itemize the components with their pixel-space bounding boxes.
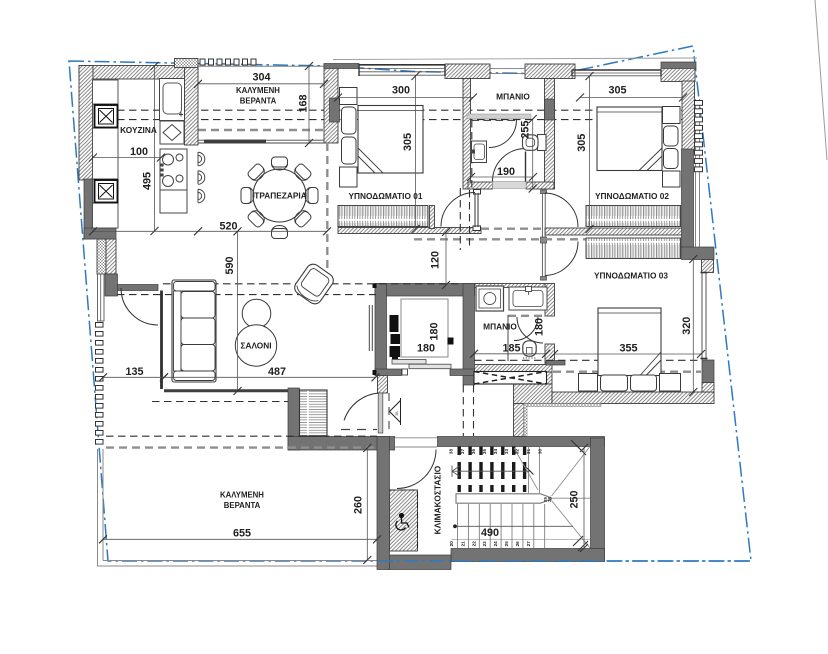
svg-text:487: 487 <box>268 366 286 378</box>
svg-text:38: 38 <box>449 449 454 455</box>
svg-text:180: 180 <box>417 343 435 355</box>
svg-text:305: 305 <box>576 134 588 152</box>
svg-text:655: 655 <box>233 528 251 540</box>
svg-text:490: 490 <box>481 527 499 539</box>
svg-text:33: 33 <box>504 449 509 455</box>
svg-text:20: 20 <box>449 541 454 547</box>
svg-text:ΚΟΥΖΙΝΑ: ΚΟΥΖΙΝΑ <box>120 125 157 135</box>
svg-text:37: 37 <box>460 449 465 455</box>
svg-text:ΜΠΑΝΙΟ: ΜΠΑΝΙΟ <box>483 322 517 332</box>
svg-text:36: 36 <box>471 449 476 455</box>
svg-text:25: 25 <box>504 541 509 547</box>
svg-text:185: 185 <box>502 343 520 355</box>
svg-text:100: 100 <box>130 146 148 158</box>
svg-text:180: 180 <box>429 322 441 340</box>
svg-text:ΜΠΑΝΙΟ: ΜΠΑΝΙΟ <box>496 92 530 102</box>
svg-text:ΚΑΛΥΜΕΝΗ: ΚΑΛΥΜΕΝΗ <box>220 491 264 500</box>
svg-text:304: 304 <box>252 72 270 84</box>
svg-text:28: 28 <box>547 497 552 502</box>
svg-text:34: 34 <box>493 449 498 455</box>
svg-text:ΥΠΝΟΔΩΜΑΤΙΟ 02: ΥΠΝΟΔΩΜΑΤΙΟ 02 <box>595 191 669 201</box>
svg-text:3Β: 3Β <box>395 411 399 416</box>
svg-text:355: 355 <box>619 343 637 355</box>
svg-text:22: 22 <box>471 541 476 547</box>
svg-text:ΣΑΛΟΝΙ: ΣΑΛΟΝΙ <box>240 340 271 350</box>
svg-text:520: 520 <box>219 221 237 233</box>
svg-text:260: 260 <box>353 496 365 514</box>
svg-text:30: 30 <box>538 449 543 455</box>
svg-text:305: 305 <box>402 133 414 151</box>
svg-text:21: 21 <box>460 541 465 547</box>
svg-text:180: 180 <box>533 318 545 336</box>
svg-text:23: 23 <box>482 541 487 547</box>
svg-text:300: 300 <box>392 85 410 97</box>
svg-text:27: 27 <box>526 541 531 547</box>
svg-text:32: 32 <box>515 449 520 455</box>
svg-text:305: 305 <box>608 85 626 97</box>
svg-text:320: 320 <box>681 317 693 335</box>
svg-text:120: 120 <box>430 251 442 269</box>
svg-text:250: 250 <box>568 490 580 508</box>
svg-text:24: 24 <box>493 541 498 547</box>
svg-text:495: 495 <box>142 172 154 190</box>
svg-text:190: 190 <box>497 166 515 178</box>
svg-text:26: 26 <box>515 541 520 547</box>
svg-text:255: 255 <box>520 121 532 139</box>
svg-text:135: 135 <box>125 366 143 378</box>
svg-text:ΥΠΝΟΔΩΜΑΤΙΟ 01: ΥΠΝΟΔΩΜΑΤΙΟ 01 <box>349 191 423 201</box>
svg-text:ΥΠΝΟΔΩΜΑΤΙΟ 03: ΥΠΝΟΔΩΜΑΤΙΟ 03 <box>594 271 668 281</box>
svg-text:ΒΕΡΑΝΤΑ: ΒΕΡΑΝΤΑ <box>224 501 261 510</box>
svg-text:ΒΕΡΑΝΤΑ: ΒΕΡΑΝΤΑ <box>240 97 277 106</box>
svg-text:ΚΑΛΥΜΕΝΗ: ΚΑΛΥΜΕΝΗ <box>236 86 280 95</box>
svg-text:168: 168 <box>298 94 310 112</box>
svg-text:ΤΡΑΠΕΖΑΡΙΑ: ΤΡΑΠΕΖΑΡΙΑ <box>254 191 306 201</box>
svg-text:35: 35 <box>482 449 487 455</box>
svg-text:31: 31 <box>526 449 531 455</box>
svg-text:590: 590 <box>224 256 236 274</box>
svg-text:ΚΛΙΜΑΚΟΣΤΑΣΙΟ: ΚΛΙΜΑΚΟΣΤΑΣΙΟ <box>433 465 443 534</box>
